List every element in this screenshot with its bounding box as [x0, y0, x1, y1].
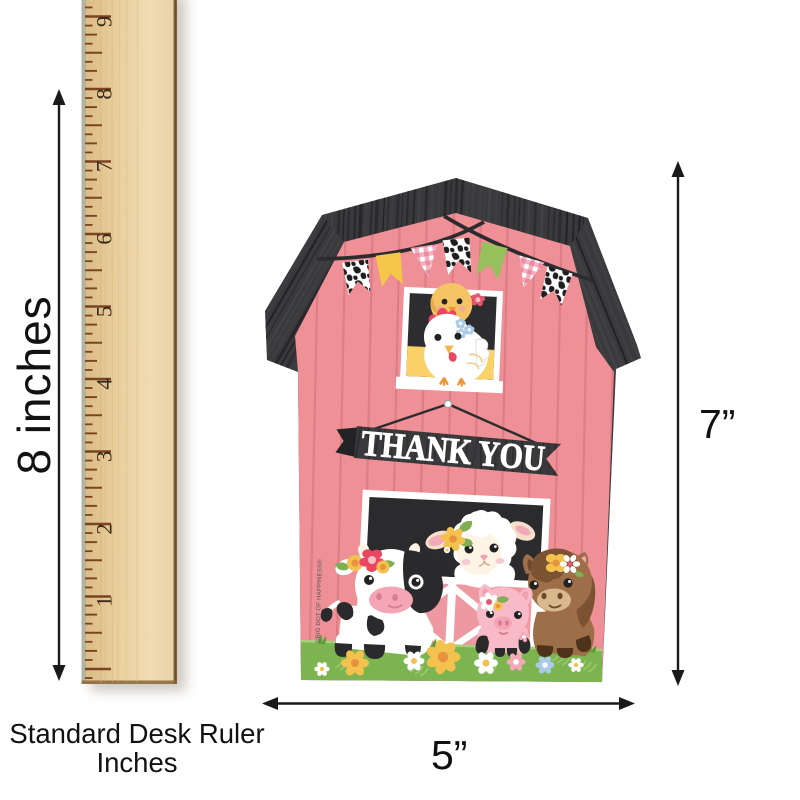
svg-text:4: 4	[92, 378, 117, 389]
svg-text:3: 3	[92, 451, 117, 462]
svg-text:7”: 7”	[699, 401, 735, 447]
svg-text:5: 5	[92, 306, 117, 317]
svg-text:1: 1	[92, 596, 117, 607]
svg-text:5”: 5”	[431, 732, 467, 778]
svg-text:6: 6	[92, 233, 117, 244]
svg-text:9: 9	[92, 16, 117, 27]
svg-text:Inches: Inches	[96, 747, 177, 778]
svg-text:8 inches: 8 inches	[8, 295, 60, 474]
svg-text:7: 7	[92, 161, 117, 172]
svg-text:2: 2	[92, 523, 117, 534]
svg-text:8: 8	[92, 88, 117, 99]
svg-text:Standard Desk Ruler: Standard Desk Ruler	[9, 718, 264, 749]
